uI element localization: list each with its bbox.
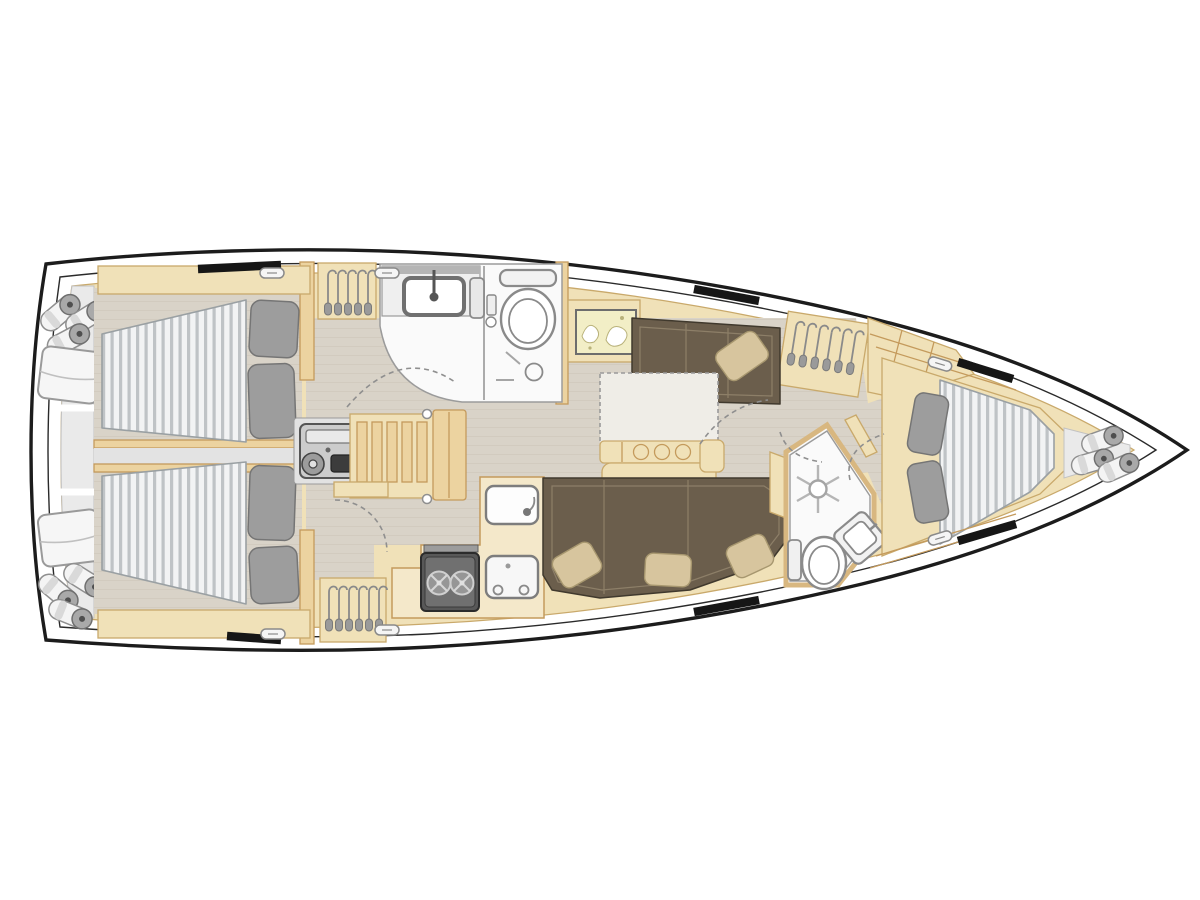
stair-step [402,422,412,482]
icebox-knob [506,564,511,569]
flush-button [486,317,496,327]
latch-icon [260,268,284,278]
galley-sink-icon [486,486,538,524]
latch-icon [375,625,399,635]
pillow [249,300,300,358]
stair-step [387,422,397,482]
grab-post-icon [423,495,432,504]
cabinet [470,278,484,318]
nautical-chart-icon [576,310,636,354]
stair-step [357,422,367,482]
yacht-floor-plan: Sailing yacht interior layout plan (top … [0,0,1200,900]
stove-burner-icon [428,572,451,595]
pillow [248,465,297,541]
stove-rail [424,545,478,552]
toilet-tank [788,540,801,580]
port-cabin-wall [94,440,302,448]
side-table [700,440,724,472]
pillow [249,546,300,604]
stair-step [417,422,427,482]
toilet-tank [500,270,556,286]
stair-lower-step [334,482,388,497]
folding-leaf-outline [600,373,718,443]
stair-step [372,422,382,482]
wardrobe-aft-port [318,263,376,319]
wardrobe-forward [777,311,870,397]
floor-plan-canvas: Sailing yacht interior layout plan (top … [0,0,1200,900]
grab-post-icon [423,410,432,419]
faucet-icon [523,508,531,516]
pillow [248,363,297,439]
stove-burner-icon [451,572,474,595]
latch-icon [375,268,399,278]
companionway-stairs [334,410,466,504]
engine-corridor [94,448,302,464]
flush-control [487,295,496,315]
throw-cushion [644,553,692,587]
faucet-icon [430,293,439,302]
latch-icon [261,629,285,639]
